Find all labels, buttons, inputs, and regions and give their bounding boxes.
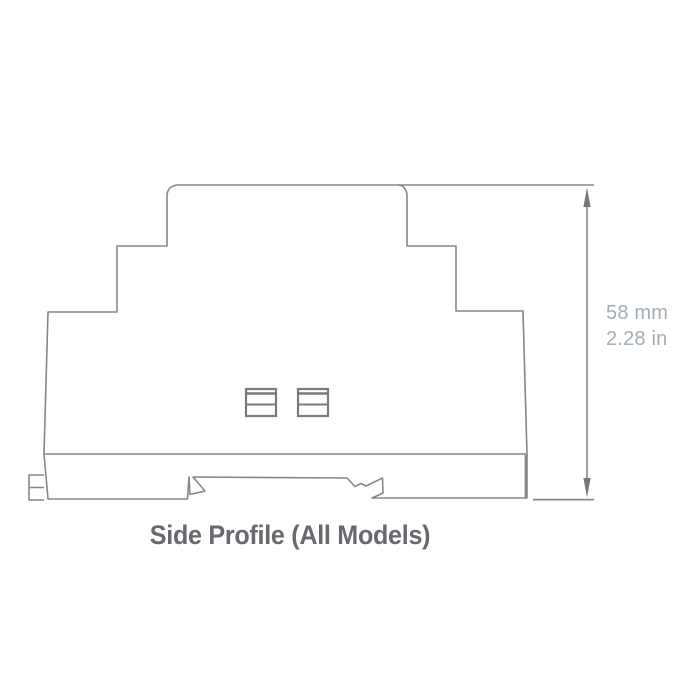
din-rail-tab-left xyxy=(29,475,44,500)
snap-button-left xyxy=(246,389,276,416)
dimension-arrow-top-icon xyxy=(583,188,590,208)
snap-button-right xyxy=(298,389,328,416)
device-profile-outline xyxy=(44,185,527,499)
figure-canvas: 58 mm 2.28 in Side Profile (All Models) xyxy=(0,0,700,700)
dimension-arrow-bottom-icon xyxy=(583,478,590,498)
side-profile-drawing xyxy=(0,0,700,700)
dimension-label: 58 mm 2.28 in xyxy=(606,300,668,352)
dimension-value-metric: 58 mm xyxy=(606,300,668,326)
dimension-value-imperial: 2.28 in xyxy=(606,326,668,352)
figure-caption: Side Profile (All Models) xyxy=(150,520,430,551)
